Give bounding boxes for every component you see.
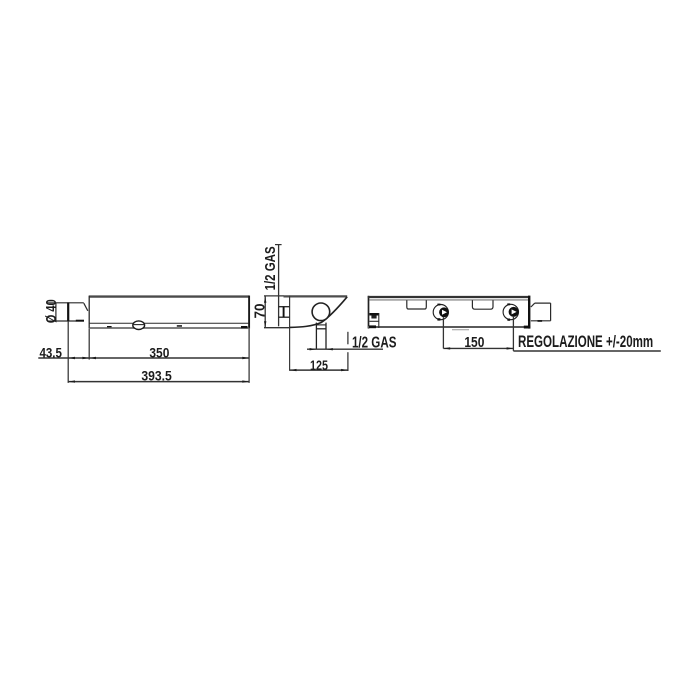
svg-text:393.5: 393.5 bbox=[141, 369, 172, 384]
svg-text:125: 125 bbox=[310, 358, 328, 373]
svg-text:REGOLAZIONE +/-20mm: REGOLAZIONE +/-20mm bbox=[518, 333, 653, 351]
svg-text:1/2 GAS: 1/2 GAS bbox=[262, 246, 279, 290]
svg-text:70: 70 bbox=[251, 304, 268, 319]
svg-text:150: 150 bbox=[464, 335, 484, 351]
svg-text:350: 350 bbox=[149, 346, 169, 361]
svg-text:1/2 GAS: 1/2 GAS bbox=[352, 334, 397, 351]
svg-text:Ø 40: Ø 40 bbox=[43, 299, 60, 323]
svg-text:43.5: 43.5 bbox=[39, 346, 62, 361]
